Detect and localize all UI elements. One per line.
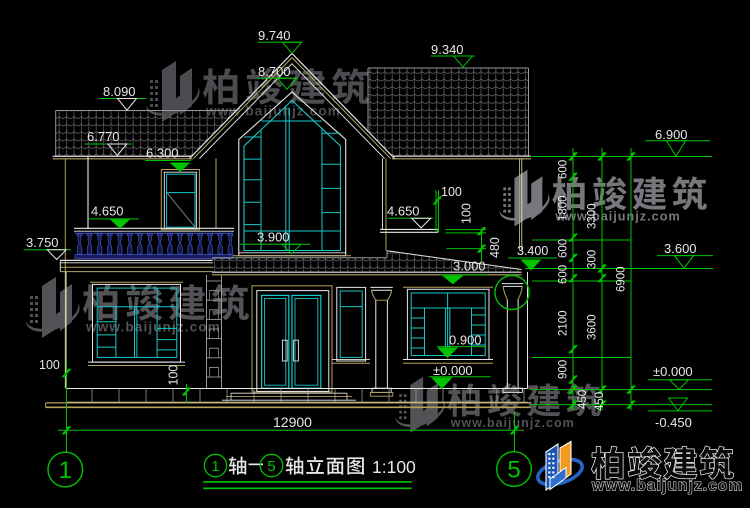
- svg-text:3.000: 3.000: [453, 259, 486, 274]
- svg-text:480: 480: [488, 237, 502, 258]
- svg-text:3.600: 3.600: [664, 241, 697, 256]
- svg-text:0.900: 0.900: [449, 333, 482, 348]
- svg-text:100: 100: [39, 358, 60, 372]
- svg-text:-0.450: -0.450: [655, 415, 692, 430]
- svg-text:3.750: 3.750: [26, 235, 59, 250]
- svg-text:4.650: 4.650: [387, 204, 420, 219]
- svg-text:6.770: 6.770: [87, 129, 120, 144]
- svg-text:3.400: 3.400: [517, 244, 548, 258]
- svg-text:1:100: 1:100: [372, 457, 416, 477]
- svg-text:1: 1: [59, 457, 72, 484]
- svg-text:6900: 6900: [616, 266, 628, 292]
- svg-text:600: 600: [558, 239, 570, 258]
- svg-text:100: 100: [441, 185, 462, 199]
- svg-text:2100: 2100: [558, 310, 570, 336]
- svg-text:100: 100: [167, 365, 181, 386]
- svg-text:600: 600: [558, 160, 570, 179]
- svg-text:8.700: 8.700: [258, 64, 291, 79]
- svg-text:±0.000: ±0.000: [433, 363, 473, 378]
- svg-text:450: 450: [594, 392, 606, 411]
- svg-text:9.740: 9.740: [258, 28, 291, 43]
- svg-text:6.300: 6.300: [146, 146, 179, 161]
- svg-text:6.900: 6.900: [655, 127, 688, 142]
- svg-text:3600: 3600: [587, 314, 599, 340]
- svg-text:12900: 12900: [273, 414, 312, 430]
- svg-text:3300: 3300: [587, 203, 599, 229]
- svg-text:900: 900: [558, 360, 570, 379]
- svg-text:4.650: 4.650: [91, 204, 124, 219]
- svg-text:www.baijunjz.com: www.baijunjz.com: [591, 478, 743, 495]
- svg-text:5: 5: [267, 458, 275, 475]
- svg-text:600: 600: [558, 265, 570, 284]
- svg-text:100: 100: [460, 203, 474, 224]
- svg-text:5: 5: [507, 457, 520, 484]
- svg-text:300: 300: [587, 250, 599, 269]
- svg-text:±0.000: ±0.000: [653, 364, 693, 379]
- svg-text:1800: 1800: [558, 195, 570, 221]
- svg-text:1: 1: [211, 458, 219, 475]
- svg-text:www.baijunjz.com: www.baijunjz.com: [450, 416, 575, 430]
- svg-text:8.090: 8.090: [103, 84, 136, 99]
- svg-text:450: 450: [577, 390, 589, 409]
- svg-text:3.900: 3.900: [257, 230, 290, 245]
- svg-text:9.340: 9.340: [431, 42, 464, 57]
